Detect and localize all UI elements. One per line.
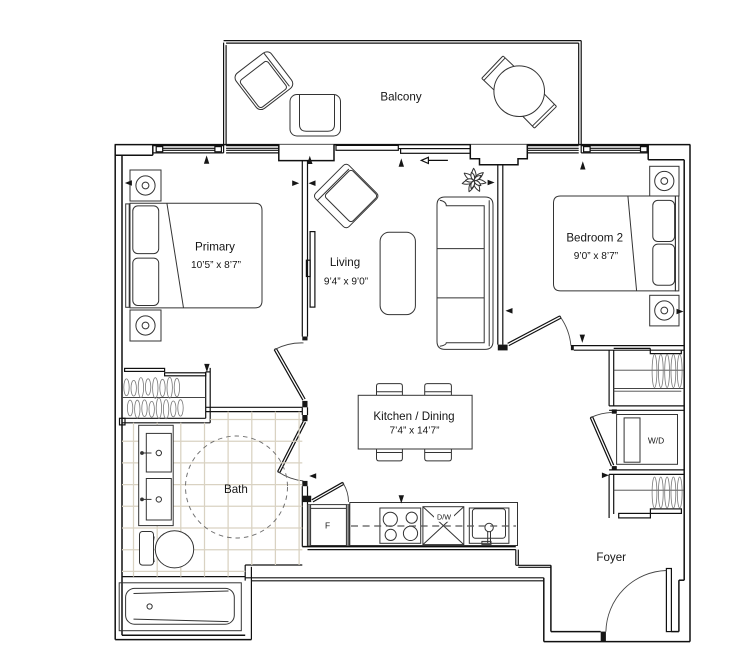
svg-text:Balcony: Balcony xyxy=(380,91,421,104)
svg-text:F: F xyxy=(325,521,330,531)
svg-text:Kitchen / Dining: Kitchen / Dining xyxy=(373,410,454,423)
svg-text:D/W: D/W xyxy=(437,513,451,522)
svg-text:Bedroom 2: Bedroom 2 xyxy=(566,232,623,245)
svg-text:Primary: Primary xyxy=(195,240,235,253)
svg-text:9’4” x 9’0”: 9’4” x 9’0” xyxy=(324,277,368,288)
svg-text:W/D: W/D xyxy=(648,436,664,446)
svg-text:Foyer: Foyer xyxy=(596,551,626,564)
svg-text:10’5” x 8’7”: 10’5” x 8’7” xyxy=(191,260,241,271)
svg-text:7’4” x 14’7”: 7’4” x 14’7” xyxy=(390,426,440,437)
svg-text:Bath: Bath xyxy=(224,483,248,496)
svg-text:9’0” x 8’7”: 9’0” x 8’7” xyxy=(574,251,618,262)
svg-text:Living: Living xyxy=(330,256,360,269)
